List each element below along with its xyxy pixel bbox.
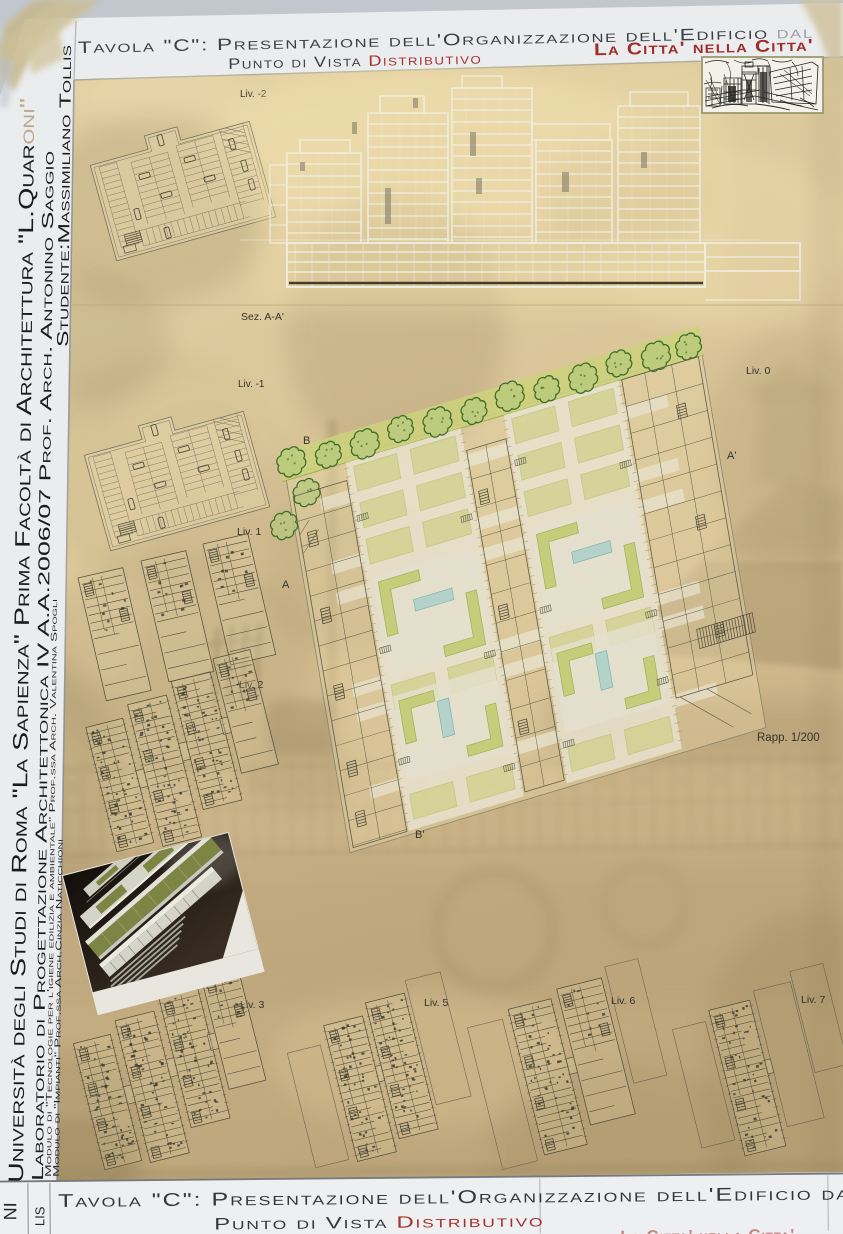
svg-text:Liv. 0: Liv. 0	[746, 365, 770, 377]
svg-text:B': B'	[415, 829, 424, 841]
svg-text:Liv. -1: Liv. -1	[238, 379, 265, 390]
svg-text:Liv. 5: Liv. 5	[424, 997, 448, 1009]
svg-text:Sez. A-A': Sez. A-A'	[241, 311, 284, 323]
svg-text:Liv. 7: Liv. 7	[801, 994, 825, 1006]
svg-text:A: A	[282, 579, 290, 591]
svg-text:Liv. 6: Liv. 6	[611, 995, 635, 1007]
svg-text:Studente:Massimiliano Tollis: Studente:Massimiliano Tollis	[55, 45, 75, 347]
svg-text:Punto di Vista Distributivo: Punto di Vista Distributivo	[214, 1212, 544, 1233]
svg-text:LIS: LIS	[32, 1206, 47, 1226]
svg-text:Rapp. 1/200: Rapp. 1/200	[757, 732, 820, 744]
svg-text:B: B	[303, 435, 310, 447]
svg-text:NI: NI	[0, 1202, 20, 1220]
svg-text:La Citta' nella Citta': La Citta' nella Citta'	[620, 1227, 795, 1234]
svg-text:A': A'	[727, 450, 736, 462]
